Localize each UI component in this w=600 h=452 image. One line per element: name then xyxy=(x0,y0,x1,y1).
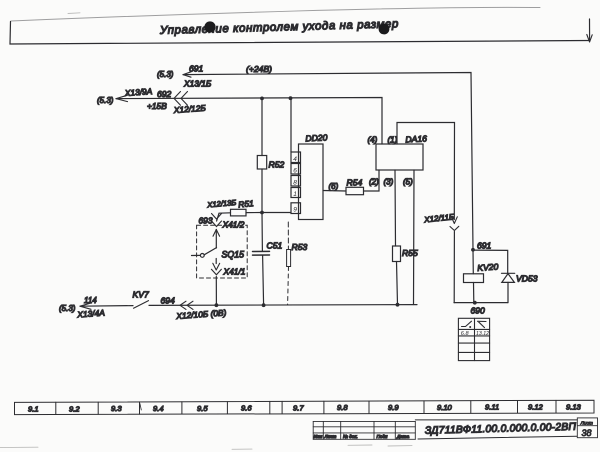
svg-text:9.11: 9.11 xyxy=(485,403,499,412)
svg-text:№ док.: № док. xyxy=(343,434,358,439)
svg-text:VD53: VD53 xyxy=(516,274,538,284)
svg-text:+15В: +15В xyxy=(147,101,167,111)
svg-text:Подп: Подп xyxy=(377,434,388,439)
svg-text:9.13: 9.13 xyxy=(566,402,582,411)
svg-text:4: 4 xyxy=(293,156,297,163)
svg-text:9.6: 9.6 xyxy=(241,404,252,413)
svg-text:X41/2: X41/2 xyxy=(222,220,245,230)
svg-text:X13/4А: X13/4А xyxy=(76,308,106,320)
svg-text:SQ15: SQ15 xyxy=(222,250,245,260)
svg-text:ЗД711ВФ11.00.0.000.0.00-2ВП: ЗД711ВФ11.00.0.000.0.00-2ВП xyxy=(425,422,577,437)
svg-text:694: 694 xyxy=(161,296,176,306)
svg-text:X12/10Б (0В): X12/10Б (0В) xyxy=(175,307,227,321)
svg-text:38: 38 xyxy=(582,428,592,438)
svg-text:9.1: 9.1 xyxy=(28,405,39,414)
svg-text:X41/1: X41/1 xyxy=(223,267,246,277)
svg-text:692: 692 xyxy=(157,89,172,99)
svg-text:R55: R55 xyxy=(402,248,418,258)
svg-text:13.12: 13.12 xyxy=(476,331,489,337)
svg-text:9.8: 9.8 xyxy=(337,403,348,412)
svg-text:X13/9А: X13/9А xyxy=(123,86,153,98)
svg-text:DD20: DD20 xyxy=(305,132,328,143)
svg-text:(+24В): (+24В) xyxy=(246,64,272,74)
svg-text:690: 690 xyxy=(471,306,486,316)
svg-text:Лист: Лист xyxy=(580,420,593,426)
svg-text:9.4: 9.4 xyxy=(153,404,164,413)
svg-text:9.3: 9.3 xyxy=(111,404,122,413)
svg-text:X12/11Б: X12/11Б xyxy=(423,212,455,224)
svg-text:9.2: 9.2 xyxy=(69,404,80,413)
svg-text:Дата: Дата xyxy=(396,434,410,439)
svg-text:6: 6 xyxy=(293,167,297,174)
svg-text:(6): (6) xyxy=(329,182,339,191)
svg-text:(3): (3) xyxy=(384,178,394,187)
svg-text:691: 691 xyxy=(477,241,492,251)
svg-text:6.8: 6.8 xyxy=(461,331,470,337)
svg-text:X13/1Б: X13/1Б xyxy=(183,79,212,89)
svg-text:(2): (2) xyxy=(369,178,379,187)
svg-text:Управление контролем ухода на: Управление контролем ухода на размер xyxy=(159,18,399,37)
svg-text:R54: R54 xyxy=(347,178,363,188)
svg-text:Лист: Лист xyxy=(324,434,337,439)
svg-text:114: 114 xyxy=(84,296,97,305)
svg-text:R53: R53 xyxy=(292,242,308,252)
svg-text:R52: R52 xyxy=(269,160,285,170)
svg-text:R51: R51 xyxy=(238,198,254,209)
svg-text:(4): (4) xyxy=(368,136,378,145)
svg-text:KV20: KV20 xyxy=(477,262,499,273)
svg-text:9.10: 9.10 xyxy=(437,403,453,412)
svg-text:(1): (1) xyxy=(388,136,398,145)
svg-text:(5.3): (5.3) xyxy=(97,96,114,105)
svg-text:693: 693 xyxy=(199,216,213,226)
svg-text:9.9: 9.9 xyxy=(388,403,399,412)
svg-text:(5.3): (5.3) xyxy=(59,304,76,313)
svg-text:691: 691 xyxy=(189,64,204,74)
svg-text:X12/13Б: X12/13Б xyxy=(206,198,237,210)
svg-text:KV7: KV7 xyxy=(133,290,150,300)
svg-text:DA16: DA16 xyxy=(405,133,427,144)
svg-text:X12/12Б: X12/12Б xyxy=(172,103,206,115)
svg-text:9.5: 9.5 xyxy=(197,404,208,413)
svg-text:9: 9 xyxy=(293,207,297,214)
svg-text:C51: C51 xyxy=(267,241,283,251)
svg-text:8: 8 xyxy=(293,179,297,186)
svg-text:9.12: 9.12 xyxy=(528,403,544,412)
svg-text:1: 1 xyxy=(293,191,297,198)
svg-text:9.7: 9.7 xyxy=(293,403,304,412)
svg-text:Изм: Изм xyxy=(314,434,323,439)
svg-text:(5.3): (5.3) xyxy=(157,70,174,79)
svg-text:(5): (5) xyxy=(403,178,413,187)
